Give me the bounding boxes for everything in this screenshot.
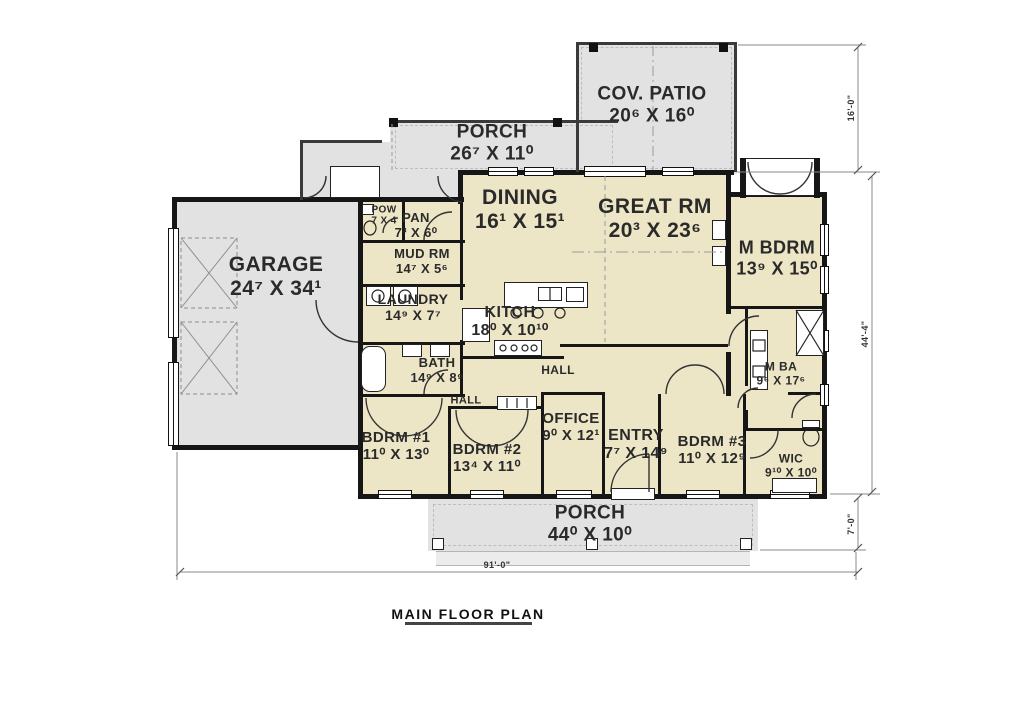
room-dims: 26⁷ X 11⁰ [450, 143, 534, 165]
garage-south-wall [172, 445, 363, 450]
floor-plan-canvas: COV. PATIO 20⁶ X 16⁰ PORCH 26⁷ X 11⁰ GAR… [0, 0, 1024, 722]
walk-west-edge [300, 140, 303, 200]
office-window [556, 490, 592, 499]
walk-north-edge [302, 140, 382, 143]
room-dims: 9⁶ X 17⁶ [757, 374, 806, 388]
patio-west-edge [576, 42, 579, 172]
room-dims: 16¹ X 15¹ [475, 210, 565, 234]
room-dims: 13⁴ X 11⁰ [453, 458, 522, 475]
room-dims: 11⁰ X 12⁹ [678, 450, 747, 467]
room-name: M BDRM [736, 237, 817, 258]
room-name: HALL [541, 364, 575, 378]
room-dims: 14⁹ X 8⁹ [410, 371, 463, 386]
mbdrm-window [820, 266, 829, 294]
room-name: MUD RM [394, 247, 450, 262]
patio-post [719, 43, 728, 52]
room-label-m-ba: M BA 9⁶ X 17⁶ [757, 360, 806, 387]
patio-north-edge [576, 42, 737, 45]
room-name: GREAT RM [598, 195, 712, 219]
room-name: M BA [757, 360, 806, 374]
patio-door [584, 166, 646, 177]
garage-area [172, 197, 362, 450]
bay-jamb-right [814, 158, 820, 198]
room-label-office: OFFICE 9⁰ X 12¹ [542, 410, 600, 444]
room-label-cov-patio: COV. PATIO 20⁶ X 16⁰ [597, 83, 706, 126]
chimney [330, 166, 380, 198]
room-label-hall-2: HALL [451, 395, 482, 408]
room-label-front-porch: PORCH 26⁷ X 11⁰ [450, 121, 534, 164]
room-label-dining: DINING 16¹ X 15¹ [475, 186, 565, 234]
office-north-wall [541, 392, 605, 395]
greatrm-south-wall [560, 344, 728, 347]
mbdrm-bay-window [744, 158, 818, 196]
patio-east-edge [734, 42, 737, 172]
dim-overall-width-label: 91'-0" [484, 560, 511, 570]
mba-west-wall-b [745, 410, 748, 430]
greatrm-east-wall-a [726, 174, 731, 314]
garage-door [168, 362, 179, 446]
porch-post [389, 118, 398, 127]
room-label-bdrm-2: BDRM #2 13⁴ X 11⁰ [453, 441, 522, 475]
service-east-wall [460, 202, 463, 300]
range [494, 340, 542, 356]
dining-window [488, 167, 518, 176]
bath-south [358, 394, 465, 397]
dining-west-wall [458, 170, 463, 204]
room-label-garage: GARAGE 24⁷ X 34¹ [229, 253, 324, 301]
bathtub [361, 346, 386, 392]
mba-wc-partition [788, 392, 824, 395]
house-south-wall [358, 494, 827, 499]
bdrm1-window [378, 490, 412, 499]
bay-jamb-left [740, 158, 746, 198]
room-label-kitch: KITCH 18⁰ X 10¹⁰ [471, 304, 548, 340]
mbdrm-window [820, 224, 829, 256]
room-name: BDRM #3 [678, 433, 747, 450]
mba-toilet-tank [802, 420, 820, 428]
room-label-rear-porch: PORCH 44⁰ X 10⁰ [548, 502, 632, 545]
room-name: PORCH [548, 502, 632, 524]
room-label-hall-1: HALL [541, 364, 575, 378]
room-dims: 11⁰ X 13⁰ [362, 446, 431, 463]
bdrm1-bdrm2-wall [448, 408, 451, 496]
room-name: PAN [395, 211, 438, 226]
mbdrm-south-wall [730, 306, 822, 309]
room-label-bdrm-3: BDRM #3 11⁰ X 12⁹ [678, 433, 747, 467]
room-dims: 14⁷ X 5⁶ [394, 262, 450, 277]
room-name: GARAGE [229, 253, 324, 277]
room-dims: 20⁶ X 16⁰ [597, 105, 706, 127]
shower [796, 310, 824, 356]
porch-post [553, 118, 562, 127]
room-label-great-rm: GREAT RM 20³ X 23⁶ [598, 195, 712, 243]
dining-window [524, 167, 554, 176]
room-name: POW [371, 205, 396, 216]
room-dims: 9⁰ X 12¹ [542, 427, 600, 444]
room-label-wic: WIC 9¹⁰ X 10⁰ [765, 452, 817, 479]
room-name: DINING [475, 186, 565, 210]
room-label-pow: POW 7 X 4 [371, 205, 396, 228]
patio-post [589, 43, 598, 52]
hall-linen-closet [497, 396, 537, 410]
room-name: BATH [410, 356, 463, 371]
porch-column [740, 538, 752, 550]
room-label-entry: ENTRY 7⁷ X 14⁹ [604, 427, 668, 463]
plan-title-underline [405, 622, 532, 625]
cooktop [566, 287, 584, 302]
room-name: OFFICE [542, 410, 600, 427]
media-center [712, 246, 726, 266]
room-dims: 7³ X 6⁰ [395, 226, 438, 241]
room-name: BDRM #1 [362, 429, 431, 446]
greatrm-east-wall-b [726, 352, 731, 396]
porch-column [432, 538, 444, 550]
room-dims: 9¹⁰ X 10⁰ [765, 466, 817, 480]
dim-patio-height-label: 16'-0" [846, 95, 856, 122]
room-label-pan: PAN 7³ X 6⁰ [395, 211, 438, 241]
room-label-m-bdrm: M BDRM 13⁹ X 15⁰ [736, 237, 817, 278]
bdrm2-window [470, 490, 504, 499]
room-label-mud-rm: MUD RM 14⁷ X 5⁶ [394, 247, 450, 277]
mba-west-wall-a [745, 308, 748, 386]
room-dims: 18⁰ X 10¹⁰ [471, 322, 548, 340]
room-label-bath: BATH 14⁹ X 8⁹ [410, 356, 463, 386]
kitchen-south-wall [460, 356, 564, 359]
room-name: BDRM #2 [453, 441, 522, 458]
room-label-laundry: LAUNDRY 14⁹ X 7⁷ [378, 292, 449, 324]
room-label-bdrm-1: BDRM #1 11⁰ X 13⁰ [362, 429, 431, 463]
bdrm3-window [686, 490, 720, 499]
room-dims: 20³ X 23⁶ [598, 219, 712, 243]
greatrm-window [662, 167, 694, 176]
mba-window [820, 384, 829, 406]
room-name: COV. PATIO [597, 83, 706, 105]
room-name: LAUNDRY [378, 292, 449, 308]
room-name: WIC [765, 452, 817, 466]
media-center [712, 220, 726, 240]
wic-north-wall [745, 428, 825, 431]
room-name: KITCH [471, 304, 548, 322]
room-name: PORCH [450, 121, 534, 143]
room-name: ENTRY [604, 427, 668, 445]
plan-title: MAIN FLOOR PLAN [391, 606, 544, 622]
front-door [611, 488, 655, 500]
room-dims: 7 X 4 [371, 216, 396, 227]
garage-door [168, 228, 179, 338]
room-dims: 7⁷ X 14⁹ [604, 445, 668, 463]
room-dims: 14⁹ X 7⁷ [378, 308, 449, 324]
dim-porch-depth-label: 7'-0" [846, 513, 856, 534]
room-dims: 44⁰ X 10⁰ [548, 524, 632, 546]
kitchen-sink [538, 287, 562, 301]
room-dims: 24⁷ X 34¹ [229, 277, 324, 301]
wic-dresser [772, 478, 817, 493]
room-dims: 13⁹ X 15⁰ [736, 258, 817, 279]
dim-main-height-label: 44'-4" [860, 321, 870, 348]
room-name: HALL [451, 395, 482, 408]
